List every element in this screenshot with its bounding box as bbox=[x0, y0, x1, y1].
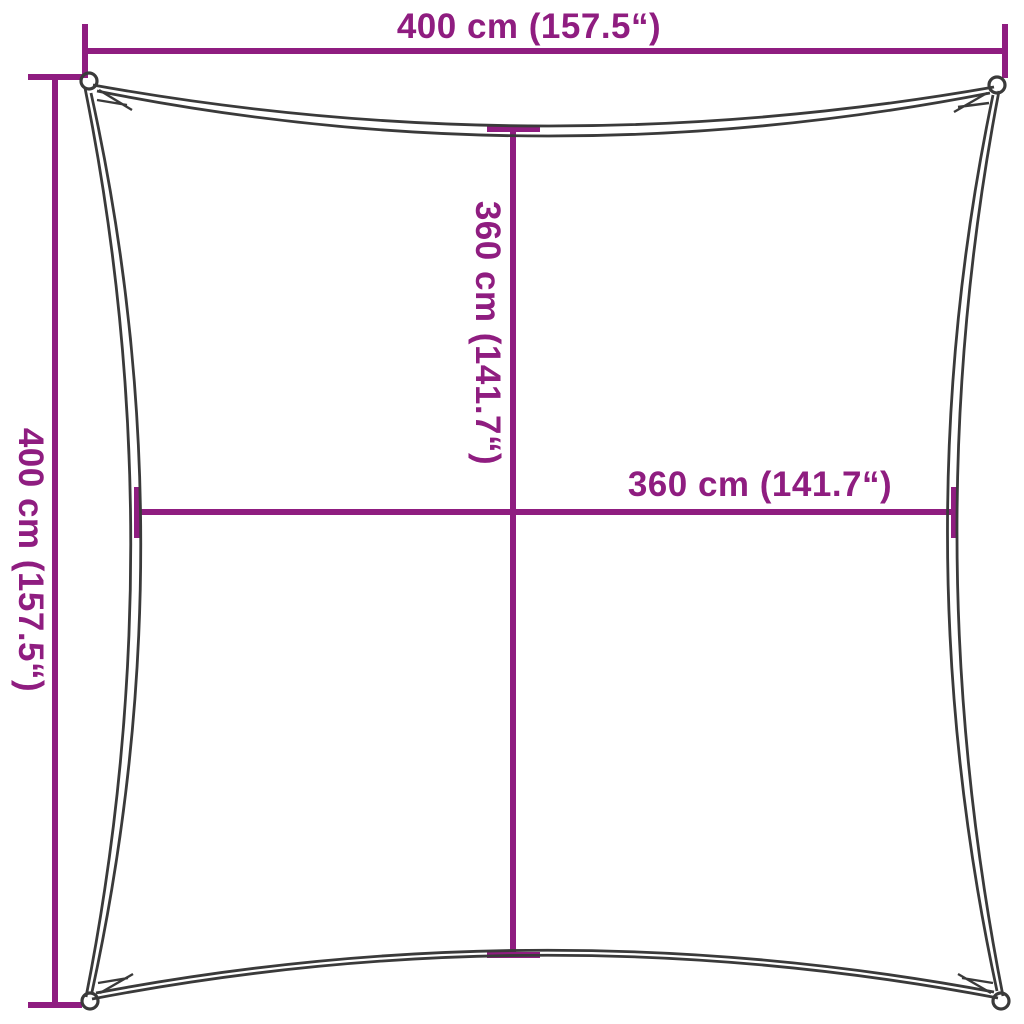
sail-edge-top-inner bbox=[97, 91, 990, 136]
dimension-label-left: 400 cm (157.5“) bbox=[10, 428, 50, 692]
corner-ring-top-right bbox=[989, 77, 1005, 93]
sail-edge-bottom-inner bbox=[96, 950, 994, 993]
sail-edge-left-inner bbox=[91, 93, 141, 992]
corner-ring-bottom-right bbox=[993, 993, 1009, 1009]
sail-edge-left-outer bbox=[85, 88, 131, 997]
dimension-label-center-horizontal: 360 cm (141.7“) bbox=[628, 465, 892, 505]
corner-wrap-bottom-right bbox=[958, 974, 993, 993]
dimension-label-top: 400 cm (157.5“) bbox=[397, 7, 661, 47]
dimension-lines-group bbox=[28, 24, 1005, 1005]
sail-edge-bottom-outer bbox=[92, 955, 998, 999]
sail-corners-group bbox=[81, 73, 1009, 1009]
dimension-diagram: 400 cm (157.5“) 400 cm (157.5“) 360 cm (… bbox=[0, 0, 1024, 1024]
dimension-label-center-vertical: 360 cm (141.7“) bbox=[467, 201, 507, 465]
sail-outline-group bbox=[85, 85, 1003, 999]
sail-edge-right-inner bbox=[947, 95, 997, 991]
sail-edge-top-outer bbox=[93, 85, 994, 126]
sail-edge-right-outer bbox=[957, 91, 1003, 996]
diagram-graphics bbox=[0, 0, 1024, 1024]
corner-ring-top-left bbox=[81, 73, 97, 89]
corner-ring-bottom-left bbox=[82, 993, 98, 1009]
